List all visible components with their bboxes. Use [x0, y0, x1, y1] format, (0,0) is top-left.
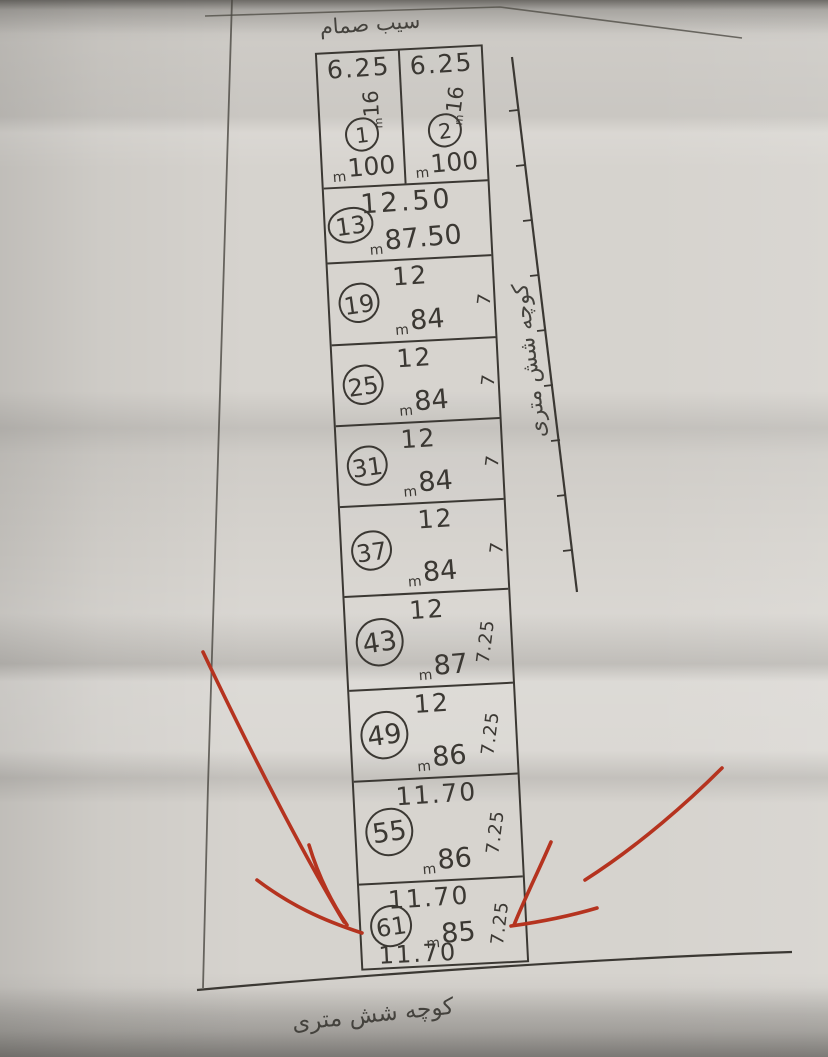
- plot-19-top-dimension: 12: [391, 260, 429, 291]
- area-value: 86: [431, 739, 468, 773]
- unit-label: m: [407, 574, 422, 591]
- plot-37-side-dimension: 7: [486, 540, 508, 555]
- plot-49-side-dimension: 7.25: [477, 710, 503, 756]
- plot-43-top-dimension: 12: [408, 594, 446, 625]
- area-value: 84: [413, 384, 450, 418]
- plot-31: 12 31 m84 7: [336, 419, 504, 508]
- plot-61-side-dimension: 7.25: [487, 900, 513, 946]
- plot-55-number: 55: [362, 804, 416, 858]
- side-value: 16: [358, 90, 383, 118]
- unit-label: m: [416, 758, 431, 775]
- left-boundary-line: [203, 0, 232, 988]
- unit-label: m: [418, 667, 433, 684]
- area-value: 100: [429, 146, 479, 179]
- unit-label: m: [402, 484, 417, 501]
- side-value: 16: [441, 85, 468, 114]
- right-street-label: کوچه شش متری: [502, 230, 558, 491]
- plot-43-number: 43: [353, 615, 407, 669]
- plot-19-side-dimension: 7: [473, 291, 495, 306]
- area-value: 86: [436, 842, 473, 876]
- plot-43: 12 43 m87 7.25: [344, 590, 513, 692]
- plot-55-top-dimension: 11.70: [395, 777, 478, 811]
- plot-55-side-dimension: 7.25: [482, 809, 508, 855]
- plot-43-area: m87: [417, 648, 470, 684]
- area-value: 87: [432, 648, 469, 682]
- plot-2-area: m100: [413, 146, 479, 182]
- plot-2: 6.25 m16 2 m100: [400, 46, 488, 183]
- plot-25-area: m84: [397, 384, 450, 420]
- area-value: 87.50: [383, 219, 463, 256]
- area-value: 100: [346, 150, 396, 183]
- unit-label: m: [398, 403, 413, 420]
- area-value: 84: [408, 303, 445, 337]
- plot-2-number: 2: [426, 112, 464, 150]
- top-note-label: سیب صمام: [284, 6, 455, 42]
- plot-row-1-2: 6.25 m16 1 m100 6.25 m16 2 m100: [317, 46, 488, 189]
- plot-37-top-dimension: 12: [417, 503, 455, 534]
- plot-49-top-dimension: 12: [413, 688, 451, 719]
- red-arrow-left: [203, 652, 362, 933]
- plot-31-side-dimension: 7: [481, 454, 503, 469]
- plot-column: 6.25 m16 1 m100 6.25 m16 2 m100 12.50 13…: [315, 44, 529, 970]
- plot-49: 12 49 m86 7.25: [349, 684, 517, 783]
- plot-37-area: m84: [406, 555, 459, 591]
- unit-label: m: [422, 861, 437, 878]
- plot-25-number: 25: [340, 362, 386, 407]
- area-value: 84: [421, 555, 458, 589]
- plot-31-area: m84: [401, 465, 454, 501]
- unit-label: m: [415, 165, 430, 182]
- unit-label: m: [369, 242, 384, 259]
- plot-25: 12 25 m84 7: [332, 338, 500, 427]
- plot-61: 11.70 61 m85 7.25 11.70: [359, 877, 527, 968]
- bottom-street-label: کوچه شش متری: [277, 992, 469, 1038]
- plot-25-top-dimension: 12: [396, 342, 434, 373]
- plot-13-area: m87.50: [367, 219, 462, 259]
- plot-19-number: 19: [336, 280, 382, 325]
- plot-61-bottom-dimension: 11.70: [378, 938, 458, 970]
- plot-31-number: 31: [344, 443, 390, 488]
- plot-19-area: m84: [393, 303, 446, 339]
- plot-1-number: 1: [343, 116, 381, 154]
- scanned-plot-map: سیب صمام کوچه شش متری کوچه شش متری 6.25 …: [0, 0, 828, 1057]
- plot-1-top-dimension: 6.25: [325, 52, 390, 85]
- plot-37: 12 37 m84 7: [340, 500, 508, 598]
- plot-2-top-dimension: 6.25: [408, 47, 473, 80]
- plot-55: 11.70 55 m86 7.25: [354, 775, 523, 886]
- red-arrow-right: [511, 768, 722, 926]
- plot-37-number: 37: [349, 528, 395, 573]
- area-value: 84: [417, 465, 454, 499]
- plot-31-top-dimension: 12: [400, 423, 438, 454]
- plot-43-side-dimension: 7.25: [473, 618, 499, 664]
- unit-label: m: [394, 322, 409, 339]
- plot-13: 12.50 13 m87.50: [324, 181, 492, 264]
- plot-55-area: m86: [420, 842, 473, 878]
- unit-label: m: [332, 169, 347, 186]
- plot-1-area: m100: [330, 150, 396, 186]
- plot-25-side-dimension: 7: [477, 373, 499, 388]
- plot-19: 12 19 m84 7: [328, 256, 496, 346]
- plot-13-top-dimension: 12.50: [359, 183, 453, 220]
- plot-1: 6.25 m16 1 m100: [317, 51, 407, 188]
- plot-49-number: 49: [357, 708, 411, 762]
- plot-49-area: m86: [415, 739, 468, 775]
